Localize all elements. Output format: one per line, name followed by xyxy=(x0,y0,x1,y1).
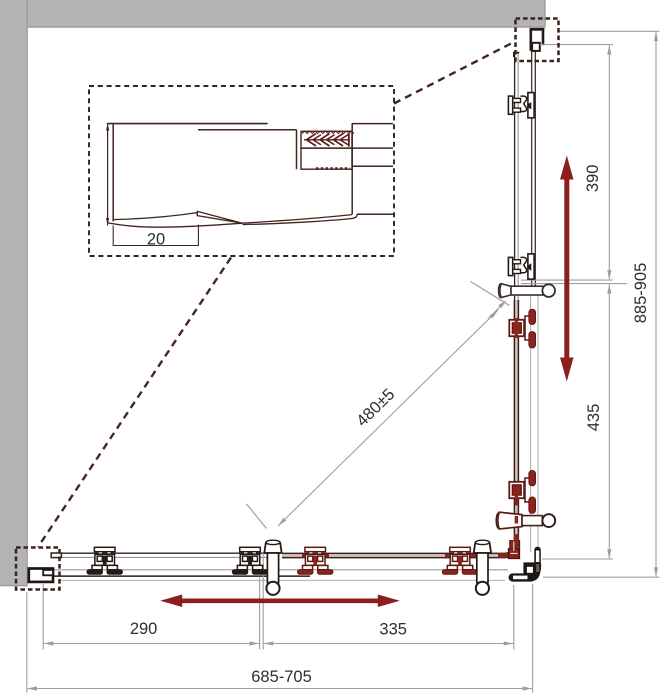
svg-text:20: 20 xyxy=(147,231,165,249)
svg-text:885-905: 885-905 xyxy=(632,263,650,324)
svg-text:335: 335 xyxy=(379,621,407,639)
svg-text:290: 290 xyxy=(130,620,158,638)
svg-text:390: 390 xyxy=(584,165,602,193)
svg-text:685-705: 685-705 xyxy=(251,668,312,686)
svg-text:435: 435 xyxy=(585,404,603,432)
